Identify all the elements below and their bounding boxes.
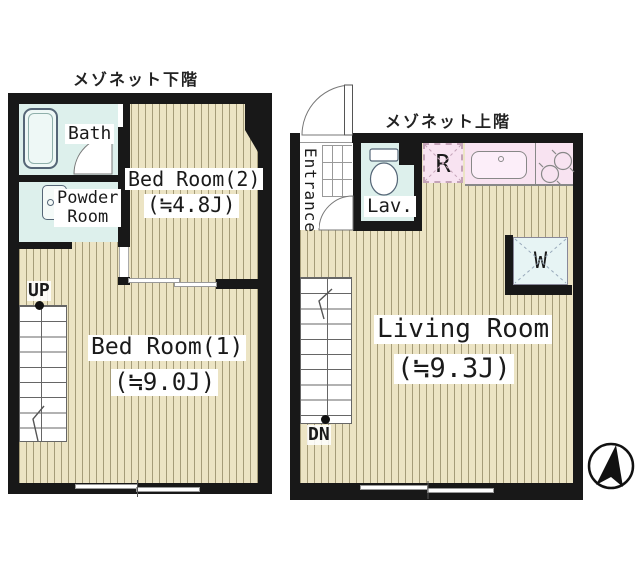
refrigerator-label: R [435, 149, 450, 178]
window-pane [360, 485, 428, 490]
sink-faucet-dot [47, 199, 54, 206]
entrance-opening [300, 133, 352, 143]
bedroom-divider-wall [216, 279, 258, 289]
window-pane [136, 487, 200, 492]
living-room-size-label: (≒9.3J) [394, 354, 514, 384]
hall-door-opening [119, 247, 129, 278]
bathtub-icon [23, 108, 58, 169]
stair-end-dot [321, 415, 330, 424]
sliding-door-panel [174, 282, 217, 287]
sink-faucet-dot [498, 156, 504, 162]
lav-east-wall [414, 143, 422, 231]
powder-bottom-wall [8, 242, 72, 249]
entrance-door-leaf-icon [345, 85, 353, 135]
north-arrow-icon [589, 444, 633, 488]
bath-powder-wall [19, 175, 130, 182]
lower-floor-plan: Bath Powder Room Bed Room(2) (≒4.8J) Bed… [8, 93, 272, 494]
washer-label: W [534, 249, 547, 274]
bedroom2-name-label: Bed Room(2) [125, 168, 263, 190]
kitchen-sink-icon [471, 151, 527, 179]
powder-room-label2: Room [67, 207, 108, 227]
powder-room-label: Powder [57, 188, 118, 208]
entrance-door-arc-icon [302, 85, 352, 135]
floor-plan-page: メゾネット下階 Bath Powder Room [0, 0, 640, 569]
washer-nook-wall-bottom [505, 285, 572, 295]
lav-bottom-wall [353, 221, 422, 231]
stairs-up-label: UP [27, 281, 51, 301]
stair-start-dot [35, 301, 44, 310]
wall-slit [118, 104, 123, 127]
entrance-label: Entrance [301, 146, 319, 228]
living-room-name-label: Living Room [374, 315, 552, 344]
genkan-tile-grid [322, 145, 352, 197]
stair-centerline [41, 306, 42, 441]
lower-plan-title: メゾネット下階 [73, 66, 199, 90]
kitchen-counter [465, 143, 573, 186]
upper-floor-plan: R W Entrance Lav. Living Room (≒9.3J) DN [290, 133, 583, 500]
entrance-lav-wall [353, 143, 361, 231]
stairs-dn-label: DN [307, 425, 331, 445]
lavatory-label: Lav. [364, 196, 416, 217]
counter-divider [535, 143, 536, 184]
window-pane [75, 484, 138, 489]
staircase-down [300, 277, 352, 424]
sliding-door-panel [128, 278, 180, 283]
refrigerator-box: R [423, 143, 463, 183]
bedroom1-size-label: (≒9.0J) [111, 369, 218, 396]
stair-centerline [327, 278, 328, 423]
bedroom1-name-label: Bed Room(1) [88, 335, 246, 361]
washer-box: W [513, 237, 568, 285]
bath-label: Bath [65, 124, 114, 144]
upper-plan-title: メゾネット上階 [385, 108, 511, 132]
bedroom2-size-label: (≒4.8J) [144, 194, 239, 218]
window-pane [427, 488, 494, 493]
staircase-up [19, 305, 67, 442]
